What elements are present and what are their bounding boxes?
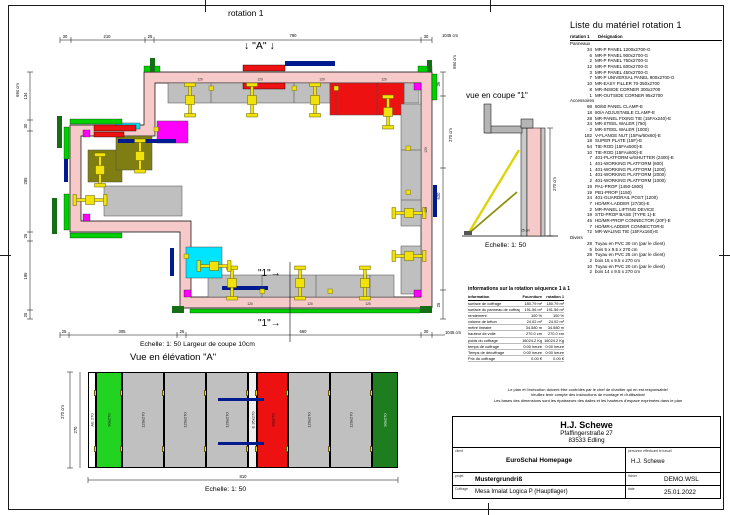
svg-text:30: 30: [23, 123, 28, 128]
elevation-panel: 90x270: [96, 372, 122, 468]
info-row-rotation: 16024.2 Kg: [542, 338, 564, 343]
elevation-panel-label: AE 270: [90, 413, 95, 426]
info-row-fourniture: 180.79 m²: [520, 301, 542, 306]
svg-text:120: 120: [257, 78, 263, 82]
info-row-rotation: 0.00 €: [542, 356, 564, 361]
svg-text:270 cm: 270 cm: [448, 128, 453, 142]
svg-text:134: 134: [23, 92, 28, 100]
info-header-label: information: [468, 294, 520, 299]
project-value: Mustergrundriß: [475, 476, 625, 483]
svg-text:120: 120: [381, 78, 387, 82]
rotation-info-table: informations sur la rotation séquence 1 …: [468, 286, 564, 362]
elevation-panel-label: 90x270: [107, 413, 112, 426]
elevation-panel: 120x270: [330, 372, 372, 468]
info-row-rotation: 180.79 m²: [542, 301, 564, 306]
elevation-panel: E 35x270: [248, 372, 257, 468]
svg-text:270 cm: 270 cm: [60, 405, 65, 419]
material-row: 2bois 14 x 9.5 x 270 cm: [570, 269, 722, 275]
elevation-panel: 90x270: [372, 372, 398, 468]
svg-text:30: 30: [424, 34, 429, 39]
project-label: projet: [455, 474, 463, 478]
svg-text:25: 25: [62, 329, 67, 334]
svg-text:120: 120: [319, 78, 325, 82]
svg-text:1045 cm: 1045 cm: [445, 330, 462, 335]
file-label: fichier: [628, 474, 637, 478]
svg-text:25 cm: 25 cm: [521, 229, 530, 233]
material-list-title: Liste du matériel rotation 1: [570, 20, 722, 30]
section-marker-1: "1"→: [258, 268, 281, 279]
plan-title: rotation 1: [228, 8, 263, 18]
elevation-panel-label: 120x270: [183, 412, 188, 427]
info-row-fourniture: 0:00 heure: [520, 344, 542, 349]
info-row-label: poids du coffrage: [468, 338, 520, 343]
svg-text:305: 305: [119, 329, 127, 334]
material-designation: MR-OUTSIDE CORNER 95x2700: [595, 93, 722, 99]
date-label: date: [628, 487, 635, 491]
svg-text:120: 120: [247, 302, 253, 306]
formwork-cell: Coffrage Mesa Imalat Logica P (Hauptlage…: [453, 486, 626, 498]
info-row-fourniture: 191.56 m²: [520, 307, 542, 312]
info-row-rotation: 270.0 cm: [542, 331, 564, 336]
info-title: informations sur la rotation séquence 1 …: [468, 286, 564, 292]
material-designation: bois 14 x 9.5 x 270 cm: [595, 269, 722, 275]
info-row-label: Prix du coffrage: [468, 356, 520, 361]
info-header-rotation: rotation 1: [542, 294, 564, 299]
elevation-panel: 120x270: [164, 372, 206, 468]
elevation-panel: 120x270: [288, 372, 330, 468]
svg-text:120: 120: [307, 302, 313, 306]
waler-bar: [218, 398, 264, 401]
material-list-header: rotation 1 Désignation: [570, 34, 722, 41]
client-value: EuroSchal Homepage: [453, 457, 625, 464]
info-row-label: Temps de décoffrage: [468, 350, 520, 355]
elevation-scale-label: Echelle: 1: 50: [205, 486, 246, 493]
elevation-panel: 90x270: [257, 372, 288, 468]
info-row-rotation: 0:00 heure: [542, 350, 564, 355]
elevation-panel: 120x270: [122, 372, 164, 468]
info-row-fourniture: 100 %: [520, 313, 542, 318]
svg-text:620: 620: [436, 192, 441, 200]
waler-bar: [218, 442, 264, 445]
plan-scale-label: Echelle: 1: 50 Largeur de coupe 10cm: [140, 341, 255, 348]
section-scale-label: Echelle: 1: 50: [485, 242, 526, 249]
material-header-qty: rotation 1: [570, 34, 598, 39]
svg-text:285: 285: [23, 177, 28, 185]
elevation-panel-label: 120x270: [141, 412, 146, 427]
info-row-label: temps de coffrage: [468, 344, 520, 349]
company-street: Pfaffingerstraße 27: [453, 430, 720, 437]
info-row-label: mètre linéaire: [468, 325, 520, 330]
svg-text:270: 270: [73, 426, 78, 434]
elevation-panel-label: 90x270: [383, 413, 388, 426]
elevation-panel-label: 120x270: [307, 412, 312, 427]
drawing-sheet: 30 210 25 780 30 1045 cm 134 30 285 25 1…: [0, 0, 730, 515]
formwork-value: Mesa Imalat Logica P (Hauptlager): [475, 489, 625, 495]
info-row-rotation: 0:00 heure: [542, 344, 564, 349]
info-row-fourniture: 16024.2 Kg: [520, 338, 542, 343]
svg-text:30: 30: [424, 329, 429, 334]
info-row-label: surface de coffrage: [468, 301, 520, 306]
section-marker-1: "1"→: [258, 318, 281, 329]
info-row-label: hauteur de voile: [468, 331, 520, 336]
section-marker-a: ↓ "A" ↓: [244, 40, 275, 52]
material-qty: 2: [570, 269, 592, 275]
info-row-fourniture: 0:00 heure: [520, 350, 542, 355]
elevation-title: Vue en élévation "A": [130, 352, 216, 363]
info-row-fourniture: 34.580 m: [520, 325, 542, 330]
material-designation: MR-WALING TIE (15FAx160)-E: [595, 229, 722, 235]
svg-text:120: 120: [424, 147, 428, 153]
svg-text:30: 30: [63, 34, 68, 39]
file-value: DEMO.WSL: [664, 476, 720, 483]
company-cell: H.J. Schewe Pfaffingerstraße 27 83533 Ed…: [453, 417, 720, 448]
info-rows: surface de coffrage180.79 m²180.79 m²sur…: [468, 301, 564, 363]
client-label: client: [455, 449, 463, 453]
svg-text:1045 cm: 1045 cm: [442, 33, 459, 38]
worker-label: personne effectuant le travail: [628, 449, 671, 453]
elevation-panel: AE 270: [88, 372, 96, 468]
client-cell: client EuroSchal Homepage: [453, 448, 626, 473]
svg-text:694 cm: 694 cm: [15, 83, 20, 97]
date-value: 25.01.2022: [664, 489, 720, 496]
svg-text:694 cm: 694 cm: [452, 55, 457, 69]
info-row-label: rendement: [468, 313, 520, 318]
elevation-panel-label: 90x270: [270, 413, 275, 426]
info-row-fourniture: 270.0 cm: [520, 331, 542, 336]
info-row-rotation: 191.56 m²: [542, 307, 564, 312]
file-cell: fichier DEMO.WSL: [626, 473, 720, 486]
section-view-drawing: 270 cm 25 cm: [462, 104, 558, 236]
elevation-panel-label: 120x270: [349, 412, 354, 427]
svg-text:660: 660: [300, 329, 308, 334]
svg-text:780: 780: [290, 33, 298, 38]
elevation-panel-label: 120x270: [225, 412, 230, 427]
worker-cell: personne effectuant le travail H.J. Sche…: [626, 448, 720, 473]
elevation-panel: 120x270: [206, 372, 248, 468]
date-cell: date 25.01.2022: [626, 486, 720, 498]
svg-text:120: 120: [197, 78, 203, 82]
info-row-rotation: 24.02 m³: [542, 319, 564, 324]
svg-text:25: 25: [23, 312, 28, 317]
company-name: H.J. Schewe: [453, 420, 720, 430]
company-city: 83533 Edling: [453, 437, 720, 444]
formwork-label: Coffrage: [455, 487, 468, 491]
svg-text:120: 120: [424, 207, 428, 213]
svg-text:210: 210: [104, 34, 112, 39]
info-row-fourniture: 0.00 €: [520, 356, 542, 361]
project-cell: projet Mustergrundriß: [453, 473, 626, 486]
svg-text:195: 195: [23, 272, 28, 280]
info-row-fourniture: 24.02 m³: [520, 319, 542, 324]
material-rows: Panneaux34MR-P PANEL 1200x2700-G6MR-P PA…: [570, 41, 722, 275]
svg-text:25: 25: [148, 34, 153, 39]
elevation-panel-label: E 35x270: [250, 412, 255, 429]
svg-text:25: 25: [436, 302, 441, 307]
info-row-label: surface du panneau de coffrage: [468, 307, 520, 312]
footer-notes: Le plan et l'exécution doivent être cont…: [455, 387, 721, 403]
svg-text:120: 120: [365, 302, 371, 306]
material-list: Liste du matériel rotation 1 rotation 1 …: [570, 20, 722, 275]
info-row-label: volume de béton: [468, 319, 520, 324]
note-line: Les bases des dimensions sont les épaiss…: [455, 398, 721, 403]
info-row-rotation: 100 %: [542, 313, 564, 318]
info-header-fourniture: Fourniture: [520, 294, 542, 299]
info-row-rotation: 34.580 m: [542, 325, 564, 330]
title-block: H.J. Schewe Pfaffingerstraße 27 83533 Ed…: [452, 416, 721, 499]
svg-text:270 cm: 270 cm: [552, 177, 557, 191]
svg-text:25: 25: [180, 329, 185, 334]
svg-text:810: 810: [240, 474, 248, 479]
svg-text:25: 25: [23, 233, 28, 238]
material-header-designation: Désignation: [598, 34, 623, 39]
elevation-view: AE 27090x270120x270120x270120x270E 35x27…: [88, 372, 398, 468]
section-title: vue en coupe "1": [466, 91, 528, 100]
svg-text:36: 36: [436, 81, 441, 86]
info-row: Prix du coffrage0.00 €0.00 €: [468, 356, 564, 362]
worker-value: H.J. Schewe: [631, 459, 720, 465]
